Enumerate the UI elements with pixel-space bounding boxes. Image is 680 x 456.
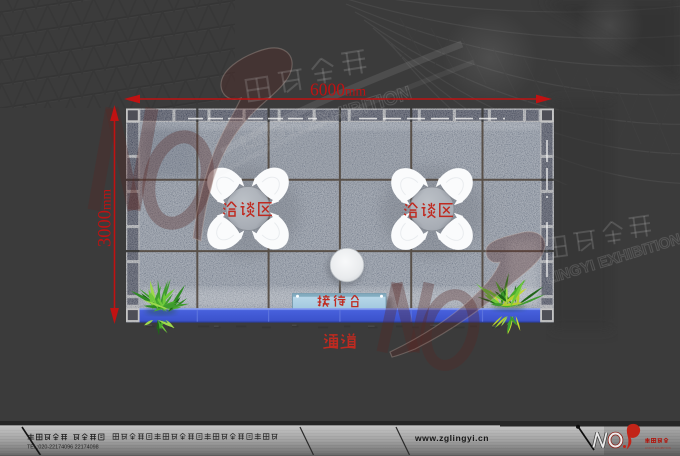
svg-text:www.zglingyi.cn: www.zglingyi.cn xyxy=(414,433,489,443)
svg-text:TEL:020-22174096 22174098: TEL:020-22174096 22174098 xyxy=(27,445,99,451)
svg-text:LINGYI EXHIBITION: LINGYI EXHIBITION xyxy=(645,446,671,450)
svg-text:3000mm: 3000mm xyxy=(96,188,116,247)
